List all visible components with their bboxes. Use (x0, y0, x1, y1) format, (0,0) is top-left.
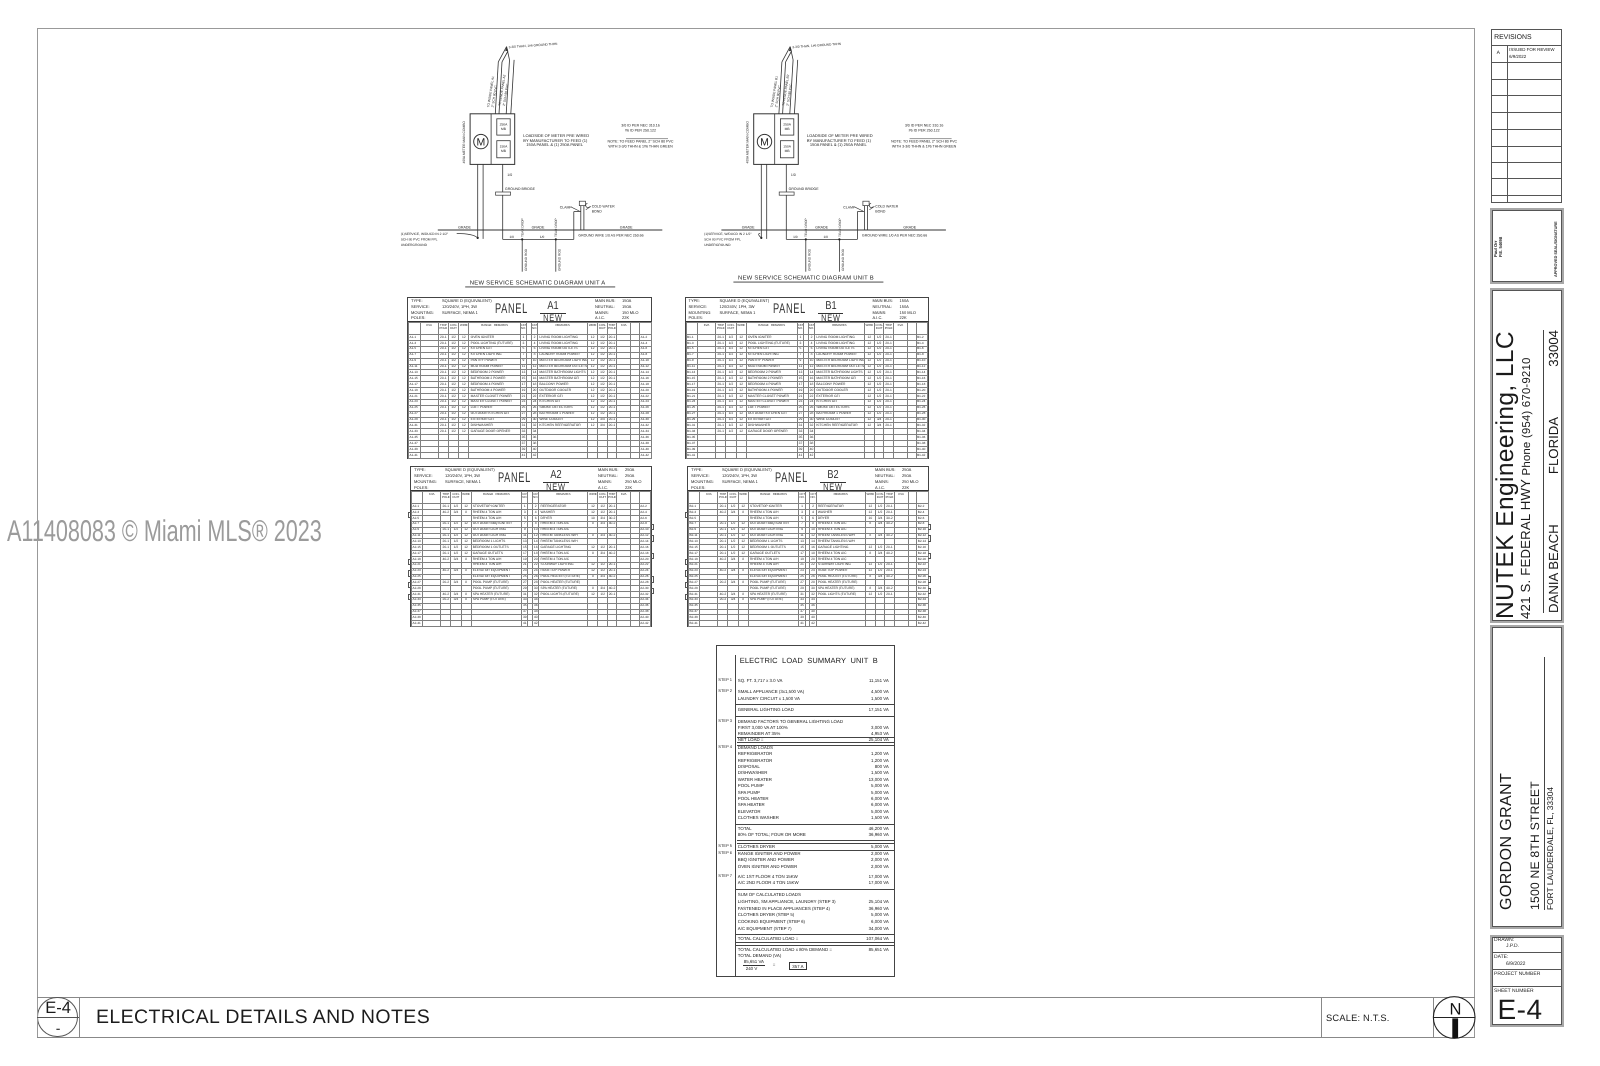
svg-text:#6 ID PER 250.122: #6 ID PER 250.122 (909, 129, 940, 133)
svg-text:TEAR DROP: TEAR DROP (804, 218, 808, 237)
svg-text:1/0: 1/0 (540, 235, 545, 239)
svg-text:GROUND ROD: GROUND ROD (807, 248, 811, 271)
svg-text:1/0: 1/0 (791, 173, 796, 177)
svg-text:BOND: BOND (875, 210, 886, 214)
svg-text:COLD WATER: COLD WATER (592, 205, 615, 209)
svg-text:GRADE: GRADE (620, 226, 633, 230)
svg-text:NOTE: TO FEED PANEL 2" SCH 80: NOTE: TO FEED PANEL 2" SCH 80 PVC (891, 139, 957, 143)
svg-text:(1)SERVICE, W/DUCD IN 2 1/2": (1)SERVICE, W/DUCD IN 2 1/2" (401, 232, 449, 236)
svg-text:TEAR DROP: TEAR DROP (838, 218, 842, 237)
svg-text:1/0: 1/0 (510, 235, 515, 239)
svg-text:3/0 ID PER NEC 310.16: 3/0 ID PER NEC 310.16 (905, 124, 944, 128)
svg-text:GRADE: GRADE (742, 226, 755, 230)
svg-text:GROUND BRIDGE: GROUND BRIDGE (505, 187, 536, 191)
svg-text:GROUND WIRE 1/0 AS PER NEC 250: GROUND WIRE 1/0 AS PER NEC 250.66 (862, 234, 927, 238)
svg-text:WITH 3-3/0 THHN & 1#6 THHN GRE: WITH 3-3/0 THHN & 1#6 THHN GREEN (608, 144, 673, 148)
svg-text:NEW SERVICE SCHEMATIC DIAGRAM: NEW SERVICE SCHEMATIC DIAGRAM UNIT B (738, 275, 874, 282)
svg-text:TEAR DROP: TEAR DROP (554, 218, 558, 237)
svg-text:NEW SERVICE SCHEMATIC DIAGRAM: NEW SERVICE SCHEMATIC DIAGRAM UNIT A (470, 280, 606, 287)
svg-text:N: N (1450, 1001, 1462, 1019)
svg-text:GROUND WIRE 1/0 AS PER NEC 250: GROUND WIRE 1/0 AS PER NEC 250.66 (578, 234, 643, 238)
svg-text:1/0: 1/0 (507, 173, 512, 177)
svg-text:UNDERGROUND: UNDERGROUND (704, 243, 731, 247)
svg-text:GRADE: GRADE (458, 226, 471, 230)
svg-text:GRADE: GRADE (903, 226, 916, 230)
svg-text:CLAMP: CLAMP (560, 206, 573, 210)
svg-text:(1)SERVICE, W/DUCD IN 2 1/2": (1)SERVICE, W/DUCD IN 2 1/2" (704, 232, 752, 236)
svg-text:3-3/0 THHN, 1#6 GROUND THHN: 3-3/0 THHN, 1#6 GROUND THHN (509, 42, 559, 49)
svg-text:GROUND ROD: GROUND ROD (524, 248, 528, 271)
svg-text:SCH 80 PVC FROM FPL: SCH 80 PVC FROM FPL (704, 237, 741, 241)
svg-text:3-3/0 THHN, 1#6 GROUND THHN: 3-3/0 THHN, 1#6 GROUND THHN (792, 42, 842, 49)
svg-text:TEAR DROP: TEAR DROP (521, 218, 525, 237)
svg-text:M: M (760, 136, 769, 148)
svg-text:GROUND ROD: GROUND ROD (557, 248, 561, 271)
svg-text:GROUND BRIDGE: GROUND BRIDGE (789, 187, 820, 191)
svg-text:GRADE: GRADE (815, 226, 828, 230)
svg-text:M: M (477, 136, 486, 148)
svg-text:MB: MB (785, 149, 791, 153)
svg-text:#6 ID PER 250.122: #6 ID PER 250.122 (625, 129, 656, 133)
svg-text:CLAMP: CLAMP (843, 206, 856, 210)
svg-text:SCH 80 PVC FROM FPL: SCH 80 PVC FROM FPL (401, 237, 438, 241)
svg-text:BOND: BOND (592, 210, 603, 214)
svg-text:MB: MB (501, 149, 507, 153)
svg-text:1/0: 1/0 (793, 235, 798, 239)
svg-text:MB: MB (785, 127, 791, 131)
svg-text:GROUND ROD: GROUND ROD (841, 248, 845, 271)
svg-text:UNDERGROUND: UNDERGROUND (401, 243, 428, 247)
svg-text:GRADE: GRADE (532, 226, 545, 230)
svg-text:WITH 3-3/0 THHN & 1#6 THHN GRE: WITH 3-3/0 THHN & 1#6 THHN GREEN (892, 144, 957, 148)
svg-text:400A METER MAIN COMBO: 400A METER MAIN COMBO (462, 121, 466, 164)
svg-text:400A METER MAIN COMBO: 400A METER MAIN COMBO (746, 121, 750, 164)
svg-text:1/0: 1/0 (824, 235, 829, 239)
svg-text:MB: MB (501, 127, 507, 131)
svg-text:3/0 ID PER NEC 310.16: 3/0 ID PER NEC 310.16 (621, 124, 660, 128)
svg-text:COLD WATER: COLD WATER (875, 205, 898, 209)
svg-text:NOTE: TO FEED PANEL 2" SCH 80: NOTE: TO FEED PANEL 2" SCH 80 PVC (607, 139, 673, 143)
